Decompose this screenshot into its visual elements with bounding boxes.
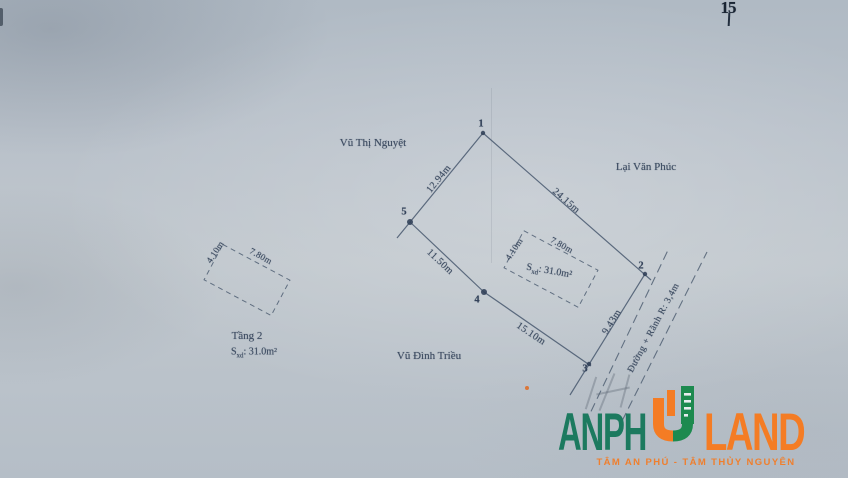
survey-point-1-marker	[481, 131, 485, 135]
point-label-4: 4	[474, 295, 479, 306]
point-label-1: 1	[478, 119, 483, 130]
point-label-3: 3	[582, 364, 587, 375]
floor2-area-label: Sxd: 31.0m²	[231, 347, 277, 360]
point-label-2: 2	[638, 261, 643, 272]
survey-point-5-marker	[407, 219, 413, 225]
scanned-land-survey-page: 15 Vũ Thị Nguyệt Lại Văn Phú	[0, 0, 848, 478]
logo-text-land: LAND	[704, 409, 804, 457]
logo-text-anph: ANPH	[558, 409, 646, 457]
adjacent-owner-right: Lại Văn Phúc	[616, 161, 676, 173]
adjacent-owner-bottom: Vũ Đình Triều	[397, 350, 461, 362]
logo-tagline: TÂM AN PHÚ - TÂM THỦY NGUYÊN	[560, 457, 832, 468]
area-value: : 31.0m²	[244, 347, 278, 358]
survey-point-2-marker	[643, 272, 647, 276]
survey-point-4-marker	[481, 289, 487, 295]
boundary-line-4-3	[484, 292, 591, 366]
area-symbol-sub: xd	[237, 352, 244, 360]
logo-u-building-icon	[649, 386, 703, 442]
adjacent-owner-top: Vũ Thị Nguyệt	[340, 137, 406, 149]
boundary-line-5-4	[410, 222, 486, 294]
floor2-title: Tầng 2	[232, 330, 263, 342]
point-label-5: 5	[401, 207, 406, 218]
